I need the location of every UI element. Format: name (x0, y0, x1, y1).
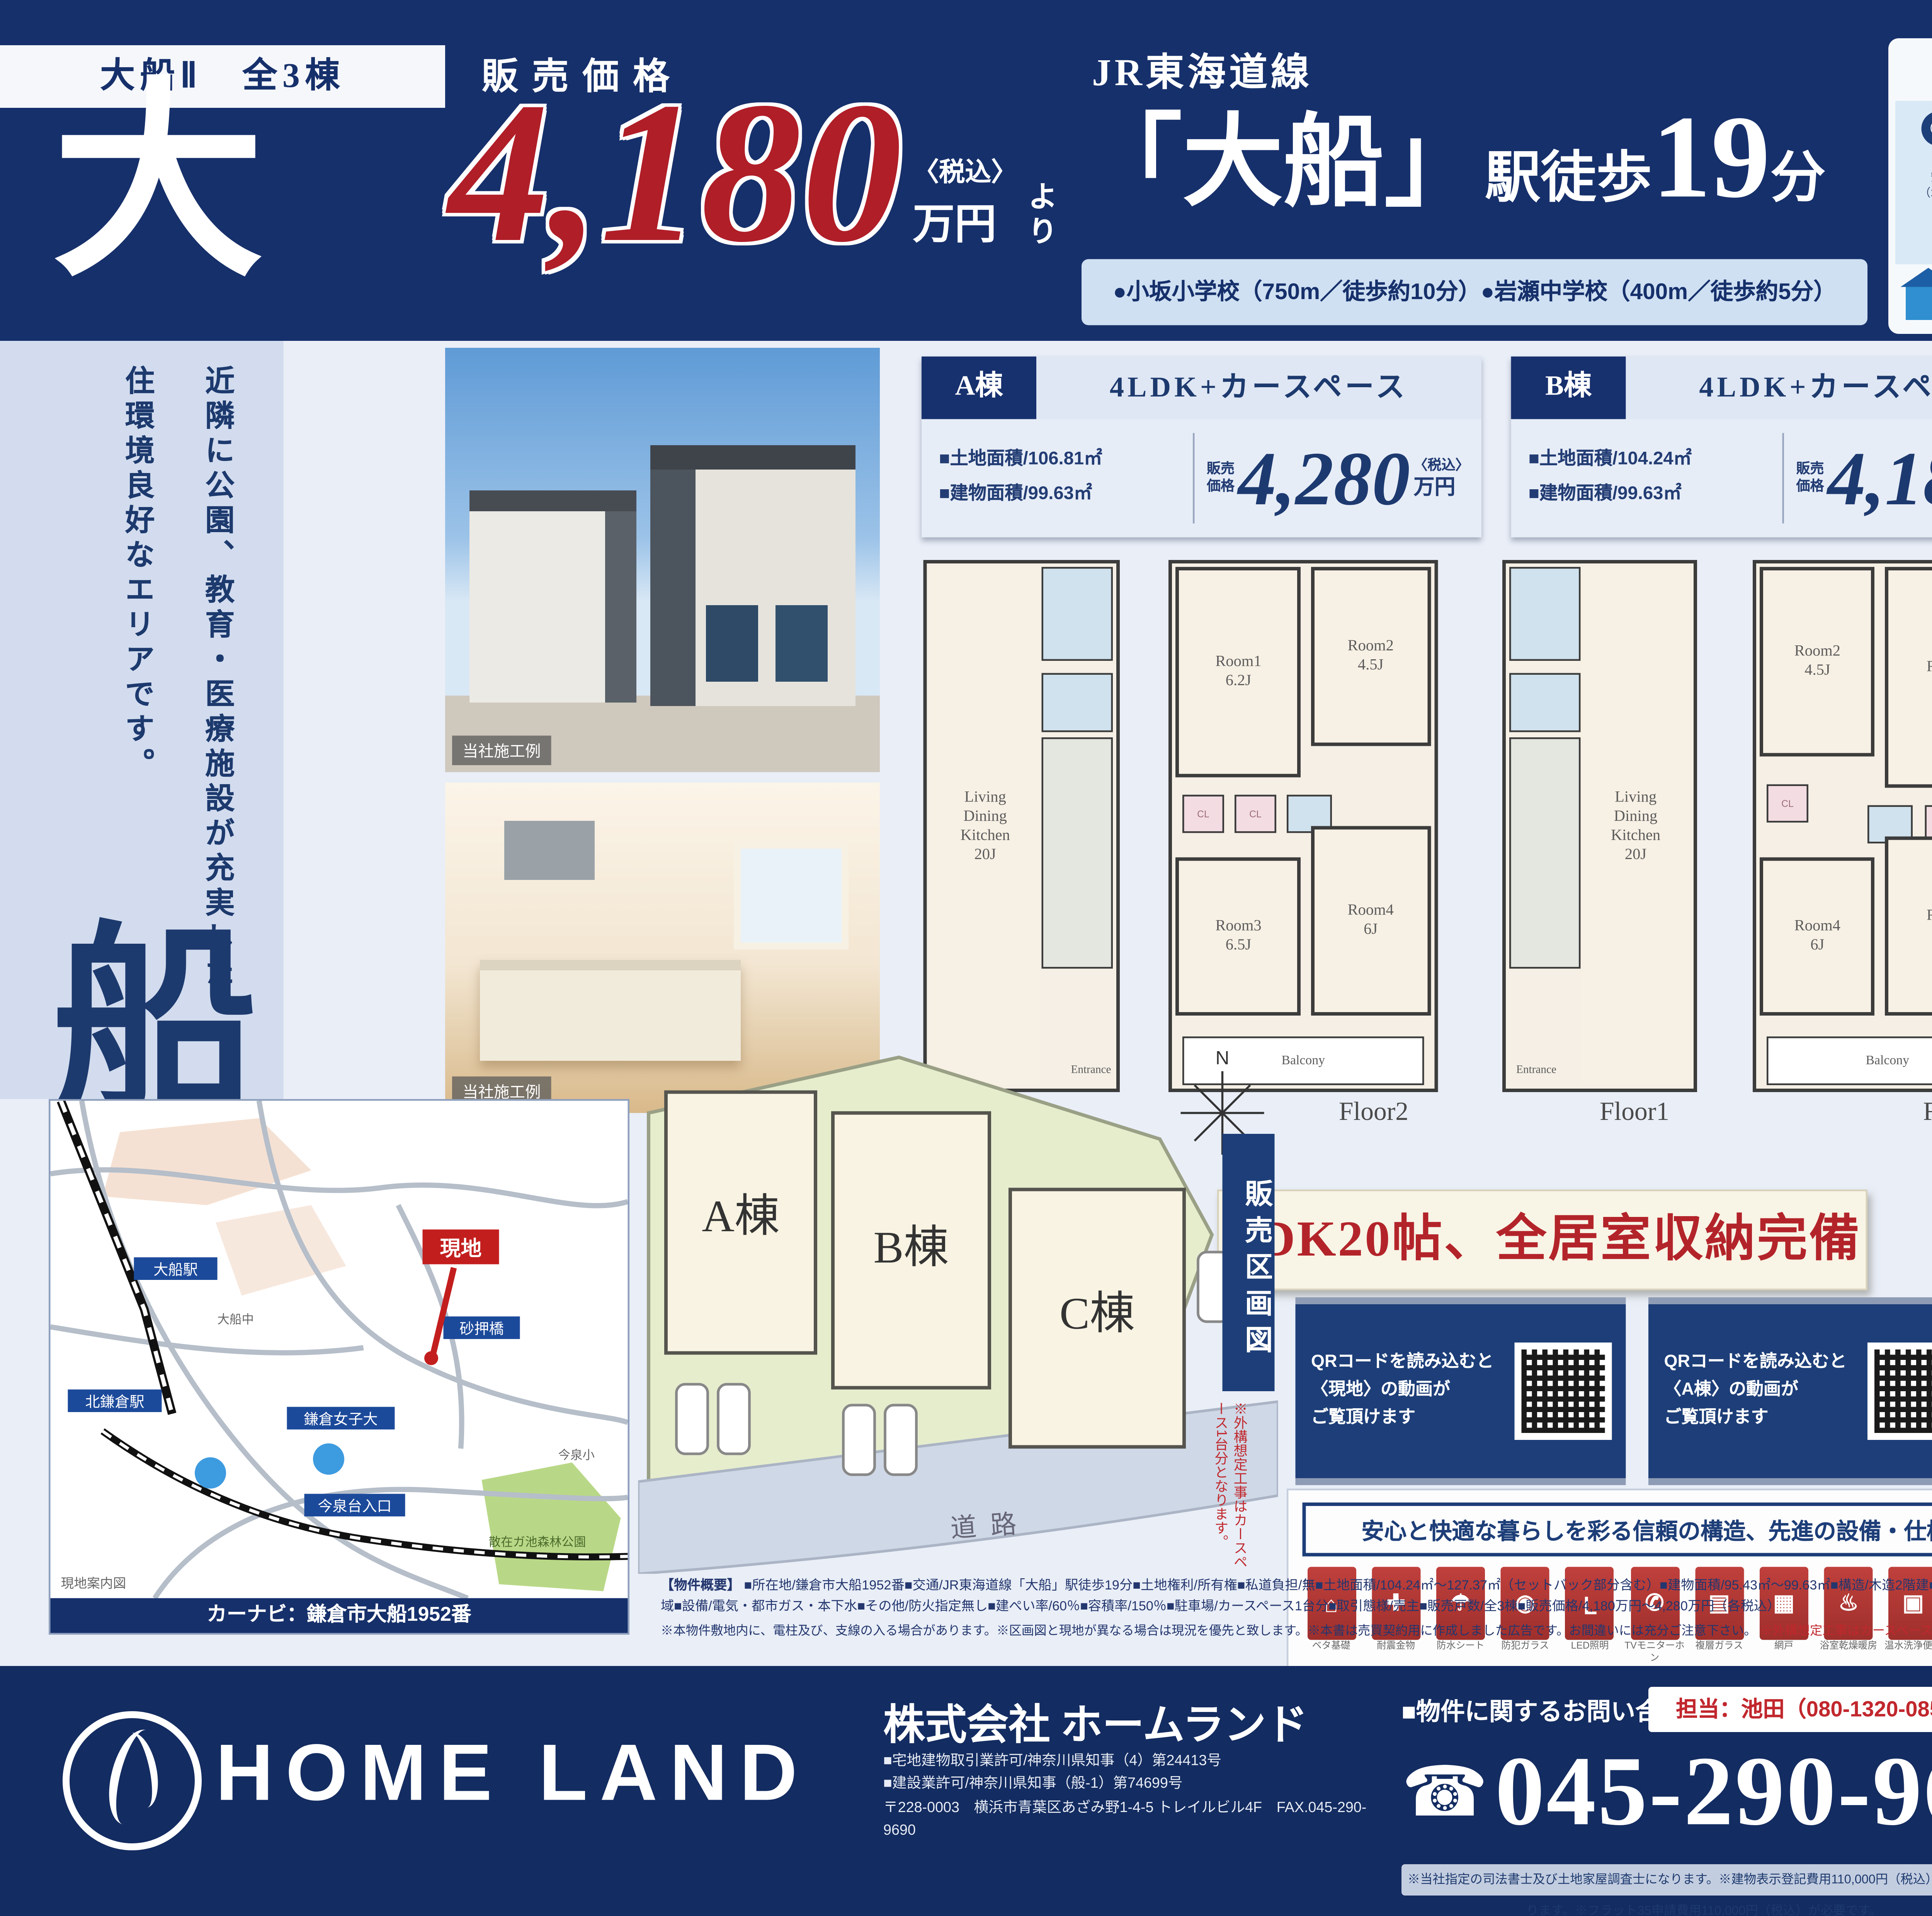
flyer-page: 大船Ⅱ 全3棟 大 販売価格 4,180 〈税込〉 万円 より JR東海道線 「… (0, 0, 1932, 1916)
hall (1041, 737, 1113, 968)
equipment-caption: 温水洗浄便座 (1881, 1642, 1932, 1653)
closet: CL (1235, 795, 1276, 833)
window (734, 842, 849, 949)
room: Room2 4.5J (1310, 567, 1431, 745)
svg-text:道路: 道路 (949, 1509, 1031, 1543)
building-layout: 4LDK+カースペース (1036, 357, 1481, 419)
area-map: 大船駅 北鎌倉駅 鎌倉女子大 砂押橋 今泉台入口 現地 散在ガ池森林公園 今泉小… (49, 1099, 629, 1635)
washroom (1041, 674, 1113, 731)
house-shape (469, 490, 636, 703)
floor-label: Floor2 (1923, 1099, 1932, 1129)
price-value: 4,180 (449, 70, 903, 281)
floorplan-b1: Living Dining Kitchen 20J Entrance (1502, 560, 1697, 1092)
license-block: ■宅地建物取引業許可/神奈川県知事（4）第24413号 ■建設業許可/神奈川県知… (883, 1749, 1388, 1843)
room: Room3 6.5J (1175, 858, 1301, 1015)
building-area: ■建物面積/99.63㎡ (939, 478, 1193, 513)
range-hood (504, 821, 595, 880)
room: Room2 4.5J (1760, 567, 1875, 756)
qr-code (1515, 1343, 1612, 1440)
service-icon: ✆ (1921, 111, 1932, 146)
building-spec-card: B棟 4LDK+カースペース ■土地面積/104.24㎡ ■建物面積/99.63… (1511, 357, 1932, 538)
equipment-caption: TVモニターホン (1622, 1642, 1687, 1664)
bathroom (1509, 567, 1581, 662)
exterior-photo: 当社施工例 (445, 348, 880, 772)
company-address: 〒228-0003 横浜市青葉区あざみ野1-4-5 トレイルビル4F FAX.0… (883, 1796, 1388, 1843)
photo-caption: 当社施工例 (452, 736, 551, 766)
inspection-house-icon (1906, 286, 1932, 320)
map-graphic: 大船駅 北鎌倉駅 鎌倉女子大 砂押橋 今泉台入口 現地 散在ガ池森林公園 今泉小… (51, 1101, 628, 1598)
land-area: ■土地面積/106.81㎡ (939, 444, 1193, 478)
ahs-title: AHSグループの安心・充実のアフターサービス (1888, 51, 1932, 92)
floor-label: Floor2 (1339, 1099, 1408, 1129)
room: Room4 6J (1310, 826, 1431, 1015)
station-name: 「大船」 (1082, 80, 1485, 226)
ahs-panel: AHSグループの安心・充実のアフターサービス ✆365日24時間10年間 のコー… (1888, 38, 1932, 334)
svg-text:今泉小: 今泉小 (558, 1448, 595, 1462)
window (776, 605, 828, 682)
site-plan: A棟 B棟 C棟 N 道路 販売区画図 ※外構想定工事はカースペース1台分となり… (638, 1043, 1278, 1574)
qr-code (1867, 1343, 1932, 1440)
svg-text:現地: 現地 (440, 1237, 482, 1260)
sale-label: 販売 価格 (1796, 461, 1824, 496)
ldk-room: Living Dining Kitchen 20J (930, 567, 1040, 1085)
equipment-title: 安心と快適な暮らしを彩る信頼の構造、先進の設備・仕様 (1303, 1503, 1932, 1557)
siteplan-note: ※外構想定工事はカースペース1台分となります。 (1212, 1402, 1250, 1572)
ldk-room: Living Dining Kitchen 20J (1581, 567, 1690, 1085)
building-areas: ■土地面積/104.24㎡ ■建物面積/99.63㎡ (1511, 433, 1784, 524)
room: Room3 6.5J (1884, 837, 1932, 1015)
phone-icon: ☎ (1401, 1752, 1488, 1832)
equipment-caption: 耐震金物 (1364, 1642, 1428, 1653)
footer-note: ※当社指定の司法書士及び土地家屋調査士になります。※建物表示登記費用110,00… (1401, 1864, 1932, 1896)
equipment-caption: 防水シート (1428, 1642, 1493, 1653)
window (706, 605, 758, 682)
svg-text:砂押橋: 砂押橋 (459, 1321, 504, 1337)
big-kanji-dai: 大 (52, 70, 264, 303)
land-area: ■土地面積/104.24㎡ (1529, 444, 1782, 478)
building-spec-card: A棟 4LDK+カースペース ■土地面積/106.81㎡ ■建物面積/99.63… (922, 357, 1481, 538)
ahs-extra-row: さらに 建築中にも第三者検査機関による 徹底した品質検査を実施しているので安心で… (1906, 275, 1932, 331)
svg-text:散在ガ池森林公園: 散在ガ池森林公園 (489, 1535, 586, 1549)
outline-note-red: ※外構想定工事はカースペース1台分となります。 (1760, 1622, 1932, 1637)
hanbai-kukaku-label: 販売区画図 (1223, 1134, 1275, 1391)
license-2: ■建設業許可/神奈川県知事（般-1）第74699号 (883, 1773, 1388, 1796)
homeland-logo-icon (63, 1711, 202, 1850)
closet: CL (1767, 784, 1808, 822)
building-price: 4,180 (1828, 434, 1932, 523)
price-suffix: 〈税込〉 万円 (913, 153, 1017, 250)
svg-text:大船中: 大船中 (218, 1312, 254, 1326)
svg-text:大船駅: 大船駅 (153, 1262, 198, 1278)
schools-note: ●小坂小学校（750m／徒歩約10分）●岩瀬中学校（400m／徒歩約5分） (1082, 259, 1867, 325)
walk-minutes: 19 (1652, 89, 1770, 226)
agent-contact: 担当：池田（080-1320-0851） (1648, 1687, 1932, 1732)
company-name-jp: 株式会社 ホームランド (883, 1690, 1308, 1751)
license-1: ■宅地建物取引業許可/神奈川県知事（4）第24413号 (883, 1749, 1388, 1773)
svg-text:今泉台入口: 今泉台入口 (318, 1498, 391, 1515)
svg-text:C棟: C棟 (1060, 1289, 1135, 1339)
qr-cards: QRコードを読み込むと 〈現地〉の動画が ご覧頂けます QRコードを読み込むと … (1296, 1297, 1932, 1485)
carnavi-bar: カーナビ：鎌倉市大船1952番 (51, 1598, 628, 1633)
floor-label: Floor1 (1600, 1099, 1669, 1129)
floorplan-b2: Room2 4.5J Room1 6.5J CL CL Room4 6J Roo… (1753, 560, 1932, 1092)
equipment-caption: 網戸 (1752, 1642, 1816, 1653)
price-yori: より (1017, 180, 1061, 250)
svg-text:現地案内図: 現地案内図 (61, 1576, 126, 1591)
building-price: 4,280 (1238, 434, 1410, 523)
phone-row: ☎ 045-290-9670 (1401, 1736, 1932, 1849)
qr-card: QRコードを読み込むと 〈A棟〉の動画が ご覧頂けます (1648, 1297, 1932, 1485)
entrance-label: Entrance (1516, 1064, 1556, 1078)
room: Room1 6.2J (1175, 567, 1301, 777)
service-desc: 緊急時対応もOK!! 安心保証サービスのコールセンター （水廻り・ガラス・カギ等… (1901, 157, 1932, 203)
equipment-caption: ベタ基礎 (1299, 1642, 1364, 1653)
price-block: 4,180 〈税込〉 万円 より (449, 70, 1104, 281)
building-name: A棟 (922, 357, 1036, 419)
property-outline: 【物件概要】 ■所在地/鎌倉市大船1952番■交通/JR東海道線「大船」駅徒歩1… (661, 1576, 1932, 1639)
building-layout: 4LDK+カースペース (1626, 357, 1932, 419)
svg-text:鎌倉女子大: 鎌倉女子大 (304, 1411, 378, 1428)
spec-cards: A棟 4LDK+カースペース ■土地面積/106.81㎡ ■建物面積/99.63… (922, 357, 1932, 538)
phone-number: 045-290-9670 (1495, 1736, 1932, 1849)
company-name-en: HOME LAND (216, 1725, 810, 1819)
ldk-banner: LDK20帖、全居室収納完備 (1217, 1189, 1867, 1290)
room: Room1 6.5J (1884, 567, 1932, 788)
svg-text:A棟: A棟 (702, 1191, 780, 1241)
equipment-caption: LED照明 (1558, 1642, 1622, 1653)
svg-text:N: N (1216, 1047, 1230, 1069)
ahs-services: ✆365日24時間10年間 のコールサービス 緊急時対応もOK!! 安心保証サー… (1888, 101, 1932, 264)
building-areas: ■土地面積/106.81㎡ ■建物面積/99.63㎡ (922, 433, 1195, 524)
washroom (1509, 674, 1581, 731)
equipment-caption: 浴室乾燥暖房 (1816, 1642, 1881, 1653)
floorplan-a1: Living Dining Kitchen 20J Entrance (923, 560, 1120, 1092)
balcony: Balcony (1767, 1036, 1932, 1085)
sale-label: 販売 価格 (1207, 461, 1235, 496)
equipment-caption: 複層ガラス (1687, 1642, 1752, 1653)
hall (1509, 737, 1581, 968)
building-name: B棟 (1511, 357, 1626, 419)
station-line: 「大船」 駅徒歩 19 分 (1082, 80, 1826, 226)
floorplan-a2: Room1 6.2J Room2 4.5J CL CL Room3 6.5J R… (1168, 560, 1438, 1092)
bathroom (1041, 567, 1113, 662)
siteplan-graphic: A棟 B棟 C棟 N 道路 (638, 1043, 1278, 1574)
ahs-service-card: ✆365日24時間10年間 のコールサービス 緊急時対応もOK!! 安心保証サー… (1895, 101, 1932, 264)
outline-notes: ※本物件敷地内に、電柱及び、支線の入る場合があります。※区画図と現地が異なる場合… (661, 1620, 1932, 1639)
svg-text:北鎌倉駅: 北鎌倉駅 (85, 1394, 145, 1411)
qr-card: QRコードを読み込むと 〈現地〉の動画が ご覧頂けます (1296, 1297, 1626, 1485)
outline-body: ■所在地/鎌倉市大船1952番■交通/JR東海道線「大船」駅徒歩19分■土地権利… (661, 1577, 1932, 1613)
room: Room4 6J (1760, 858, 1875, 1015)
outline-title: 【物件概要】 (661, 1577, 740, 1593)
svg-text:B棟: B棟 (873, 1223, 949, 1273)
building-area: ■建物面積/99.63㎡ (1529, 478, 1782, 513)
equipment-caption: 防犯ガラス (1493, 1642, 1558, 1653)
closet: CL (1182, 795, 1224, 833)
